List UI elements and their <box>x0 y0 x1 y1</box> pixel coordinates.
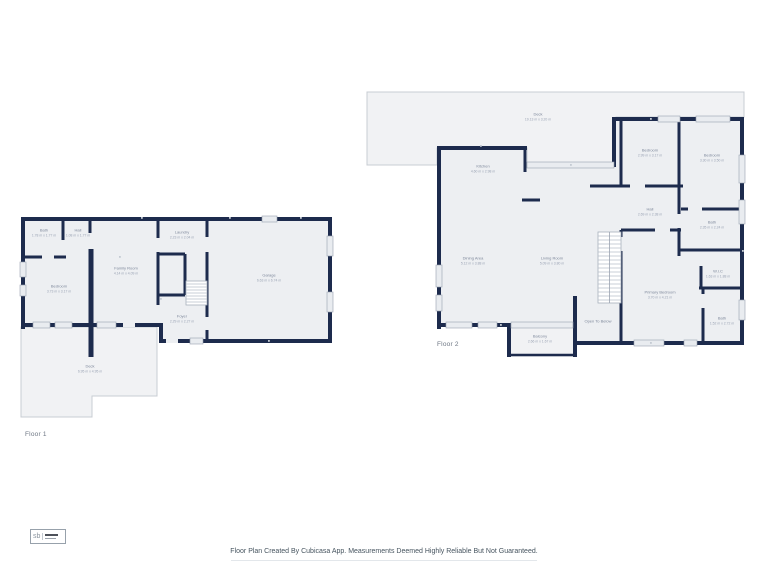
svg-text:Bedroom: Bedroom <box>642 148 659 153</box>
svg-text:Laundry: Laundry <box>175 230 189 235</box>
svg-text:1.08 m x 1.77 m: 1.08 m x 1.77 m <box>66 234 90 238</box>
floor2-label: Floor 2 <box>437 341 459 348</box>
disclaimer-divider <box>231 560 537 561</box>
svg-text:2.66 m x 1.67 m: 2.66 m x 1.67 m <box>528 340 552 344</box>
window <box>739 300 745 320</box>
svg-text:Garage: Garage <box>262 273 276 278</box>
svg-text:1.52 m x 2.72 m: 1.52 m x 2.72 m <box>710 322 734 326</box>
svg-text:Bedroom: Bedroom <box>51 284 68 289</box>
svg-text:1.63 m x 1.88 m: 1.63 m x 1.88 m <box>706 275 730 279</box>
svg-text:2.35 m x 2.24 m: 2.35 m x 2.24 m <box>700 226 724 230</box>
svg-text:2.23 m x 2.04 m: 2.23 m x 2.04 m <box>170 236 194 240</box>
svg-text:2.69 m x 2.38 m: 2.69 m x 2.38 m <box>638 213 662 217</box>
svg-text:2.99 m x 3.17 m: 2.99 m x 3.17 m <box>638 154 662 158</box>
svg-text:Bath: Bath <box>40 228 48 233</box>
svg-text:2.29 m x 2.27 m: 2.29 m x 2.27 m <box>170 320 194 324</box>
window <box>511 322 573 328</box>
svg-text:3.70 m x 4.21 m: 3.70 m x 4.21 m <box>648 296 672 300</box>
window <box>658 116 680 122</box>
floor1-label: Floor 1 <box>25 431 47 438</box>
window <box>634 340 664 346</box>
svg-text:4.60 m x 2.98 m: 4.60 m x 2.98 m <box>471 170 495 174</box>
floor1-stairs <box>186 281 207 305</box>
window <box>684 340 697 346</box>
window <box>739 200 745 224</box>
window <box>739 155 745 183</box>
svg-text:19.13 m x 3.20 m: 19.13 m x 3.20 m <box>525 118 551 122</box>
window <box>696 116 730 122</box>
svg-text:6.95 m x 4.95 m: 6.95 m x 4.95 m <box>78 370 102 374</box>
floorplan-canvas: Bath1.78 m x 1.77 mHall1.08 m x 1.77 mLa… <box>0 0 768 576</box>
svg-text:5.09 m x 3.80 m: 5.09 m x 3.80 m <box>540 262 564 266</box>
svg-text:Hall: Hall <box>647 207 654 212</box>
svg-text:4.14 m x 4.09 m: 4.14 m x 4.09 m <box>114 272 138 276</box>
window <box>190 338 203 344</box>
window <box>436 295 442 311</box>
svg-text:5.12 m x 3.88 m: 5.12 m x 3.88 m <box>461 262 485 266</box>
svg-text:3.30 m x 3.50 m: 3.30 m x 3.50 m <box>700 159 724 163</box>
svg-text:Deck: Deck <box>85 364 94 369</box>
window <box>478 322 497 328</box>
svg-text:3.73 m x 3.17 m: 3.73 m x 3.17 m <box>47 290 71 294</box>
brokerage-logo: sb <box>30 529 66 544</box>
svg-text:Balcony: Balcony <box>533 334 547 339</box>
svg-text:W.I.C: W.I.C <box>713 269 723 274</box>
floor2-plan <box>367 92 745 357</box>
svg-text:Dining Area: Dining Area <box>463 256 484 261</box>
svg-text:Open To Below: Open To Below <box>584 319 611 324</box>
svg-text:Primary Bedroom: Primary Bedroom <box>644 290 676 295</box>
logo-text-lines <box>43 534 58 539</box>
disclaimer-text: Floor Plan Created By Cubicasa App. Meas… <box>0 548 768 555</box>
window <box>436 265 442 287</box>
window <box>327 236 333 256</box>
floor2-stairs <box>598 232 621 303</box>
window <box>20 262 26 277</box>
svg-text:Deck: Deck <box>533 112 542 117</box>
svg-text:1.78 m x 1.77 m: 1.78 m x 1.77 m <box>32 234 56 238</box>
logo-text: sb <box>31 533 43 540</box>
svg-text:Kitchen: Kitchen <box>476 164 489 169</box>
window <box>262 216 277 222</box>
window <box>327 292 333 312</box>
window <box>446 322 472 328</box>
svg-text:Bedroom: Bedroom <box>704 153 721 158</box>
svg-text:Hall: Hall <box>75 228 82 233</box>
svg-text:6.63 m x 6.74 m: 6.63 m x 6.74 m <box>257 279 281 283</box>
svg-text:Foyer: Foyer <box>177 314 188 319</box>
room-label: Open To Below <box>584 319 611 324</box>
stair-treads <box>186 284 207 302</box>
window <box>55 322 72 328</box>
window <box>97 322 116 328</box>
svg-text:Bath: Bath <box>708 220 716 225</box>
window <box>33 322 50 328</box>
svg-text:Living Room: Living Room <box>541 256 564 261</box>
svg-text:Bath: Bath <box>718 316 726 321</box>
svg-text:Family Room: Family Room <box>114 266 138 271</box>
window <box>20 285 26 296</box>
